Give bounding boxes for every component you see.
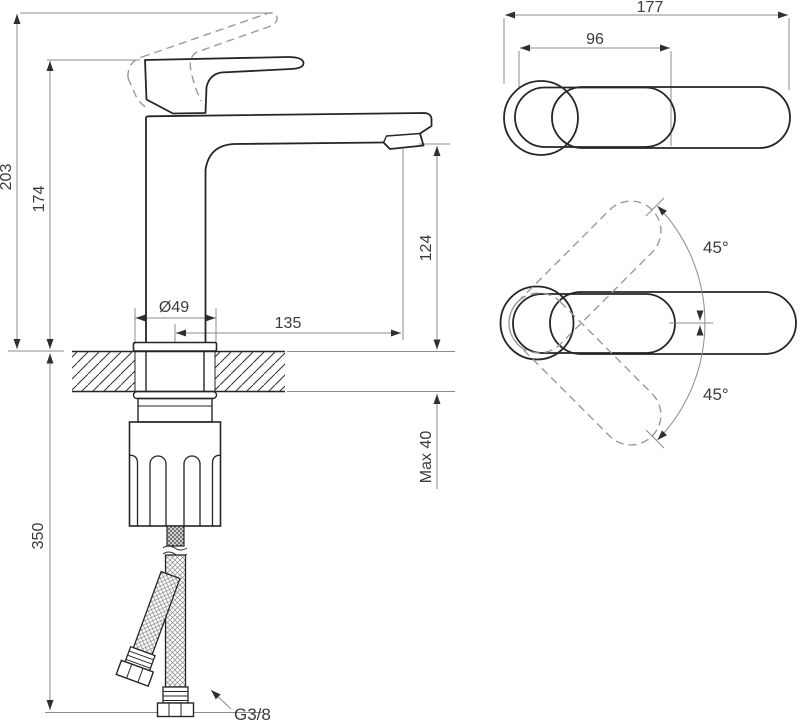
mounting-hardware — [130, 343, 221, 527]
dim-handle-length-label: 96 — [586, 31, 604, 48]
handle-lever-raised-dashed — [128, 13, 277, 109]
swing-arc-group — [646, 198, 713, 448]
threaded-stud — [163, 526, 187, 556]
faucet-body — [146, 113, 432, 392]
faucet-technical-drawing: 203 174 350 Ø49 135 124 Max 40 G3/8 — [0, 0, 800, 723]
top-view: 177 96 — [504, 0, 790, 155]
knurled-nut — [130, 422, 221, 526]
technical-drawing-page: 203 174 350 Ø49 135 124 Max 40 G3/8 — [0, 0, 800, 723]
dim-spout-reach-label: 135 — [275, 315, 302, 332]
handle-rotation-view: 45° 45° — [497, 189, 796, 458]
dim-total-height-label: 203 — [0, 164, 15, 191]
dim-outlet-height-label: 124 — [418, 235, 435, 262]
side-view: 203 174 350 Ø49 135 124 Max 40 G3/8 — [0, 13, 455, 723]
top-view-outline — [504, 81, 790, 155]
handle-stadium — [513, 294, 675, 353]
dim-base-diameter-label: Ø49 — [159, 299, 189, 316]
dim-total-length-label: 177 — [637, 0, 664, 16]
dim-hose-length-label: 350 — [30, 523, 47, 550]
dim-body-height-label: 174 — [31, 186, 48, 213]
handle-swing-dashed — [497, 189, 674, 458]
dim-hose-thread-label: G3/8 — [234, 705, 271, 723]
dim-angle-down-label: 45° — [703, 385, 729, 404]
countertop — [72, 352, 285, 392]
hex-nut — [158, 703, 194, 717]
top-view-dimension-lines — [505, 15, 788, 48]
supply-hoses — [116, 555, 193, 717]
dim-angle-up-label: 45° — [703, 238, 729, 257]
rotation-view-outline — [501, 287, 797, 360]
handle-stadium — [515, 88, 675, 148]
handle-lever — [145, 57, 304, 114]
dim-deck-max-label: Max 40 — [418, 431, 435, 484]
